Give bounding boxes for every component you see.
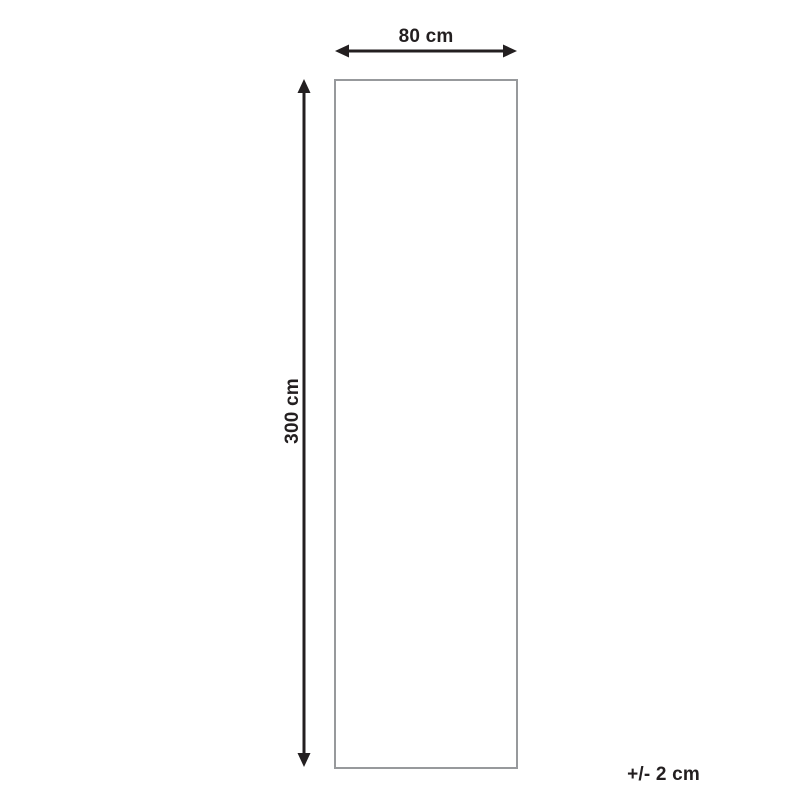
tolerance-label: +/- 2 cm xyxy=(560,764,700,786)
height-dimension-label: 300 cm xyxy=(282,351,304,471)
height-arrow-top-head-icon xyxy=(298,79,311,93)
dimension-diagram: 80 cm 300 cm +/- 2 cm xyxy=(0,0,800,800)
dimension-arrows xyxy=(0,0,800,800)
height-arrow-bottom-head-icon xyxy=(298,753,311,767)
width-dimension-label: 80 cm xyxy=(335,26,517,48)
